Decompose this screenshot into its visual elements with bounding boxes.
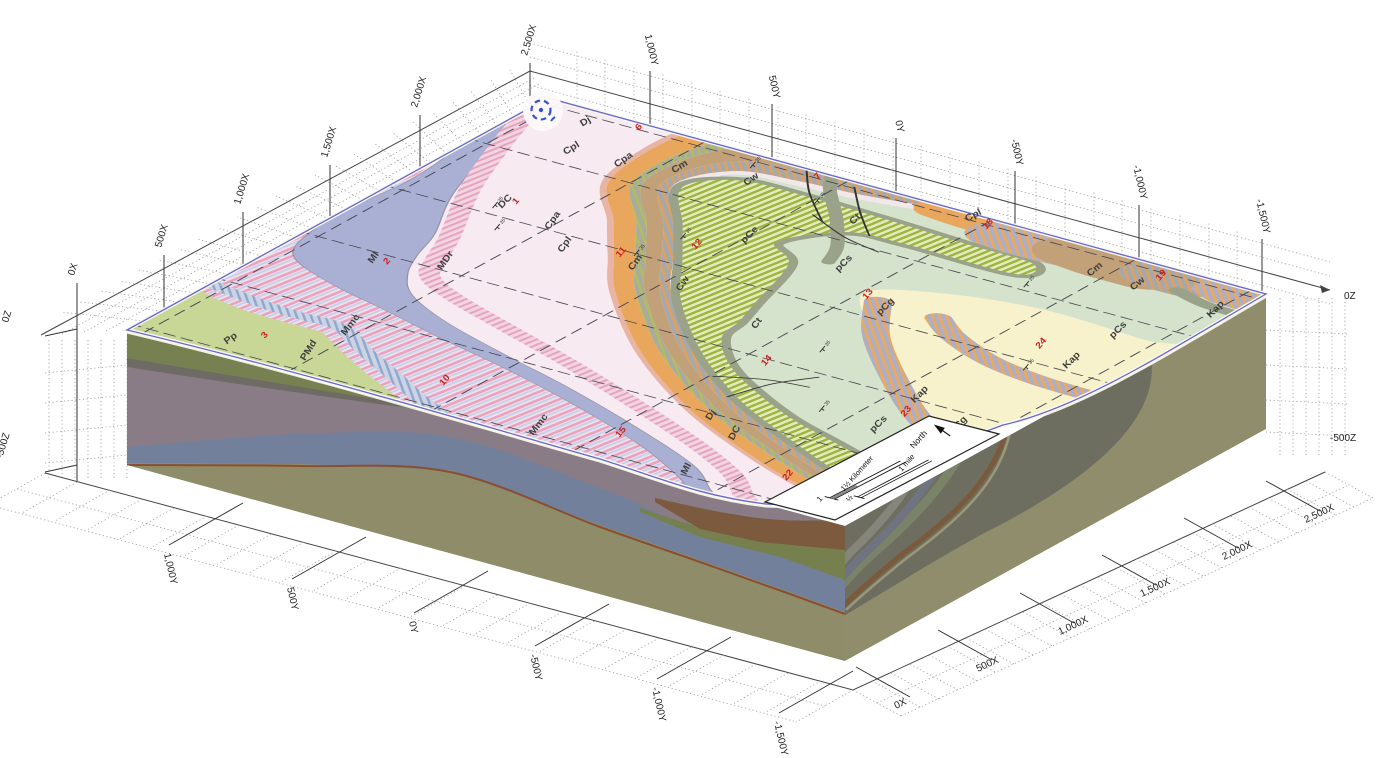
svg-text:-500Z: -500Z [1330, 433, 1356, 444]
svg-text:0Z: 0Z [1344, 291, 1356, 302]
